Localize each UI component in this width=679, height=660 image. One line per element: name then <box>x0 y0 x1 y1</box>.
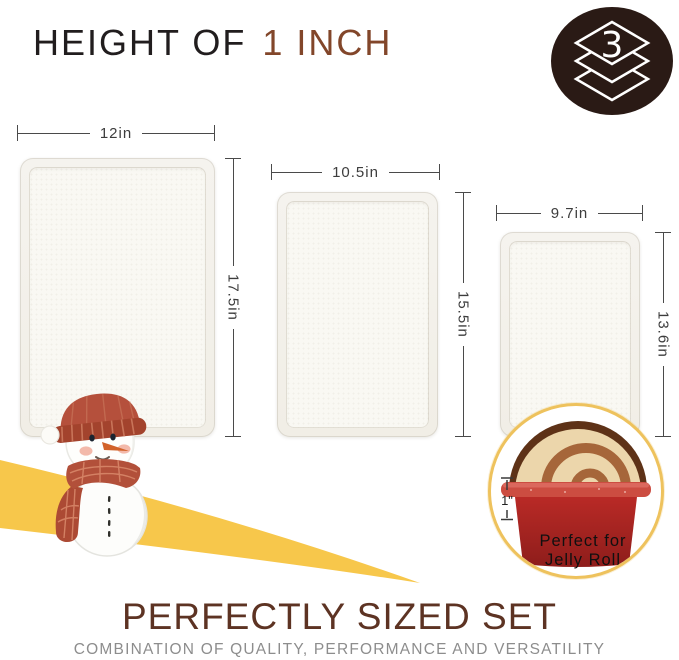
height-dimension-medium: 15.5in <box>453 192 473 437</box>
dimension-line <box>463 193 464 283</box>
dimension-line <box>233 329 234 436</box>
width-dimension-medium: 10.5in <box>271 164 440 180</box>
pan-height-label: 1" <box>501 493 513 508</box>
set-count-badge: 3 <box>551 7 673 115</box>
footer-title: PERFECTLY SIZED SET <box>0 596 679 638</box>
page-title: HEIGHT OF1 INCH <box>33 22 392 64</box>
dimension-line <box>233 159 234 266</box>
dimension-line <box>663 233 664 303</box>
inset-caption-line1: Perfect for <box>539 532 626 550</box>
dimension-line <box>598 213 642 214</box>
dimension-line <box>18 133 90 134</box>
dimension-tick <box>214 125 215 141</box>
width-label-medium: 10.5in <box>322 164 389 181</box>
dimension-line <box>497 213 541 214</box>
jelly-roll-scene: 1" Perfect for Jelly Roll <box>491 406 661 576</box>
height-dimension-large: 17.5in <box>223 158 243 437</box>
dimension-line <box>663 366 664 436</box>
footer-subtitle: COMBINATION OF QUALITY, PERFORMANCE AND … <box>0 641 679 659</box>
dimension-line <box>272 172 322 173</box>
width-dimension-small: 9.7in <box>496 205 643 221</box>
dimension-line <box>142 133 214 134</box>
baking-sheet-medium-surface <box>286 201 429 428</box>
page-title-brown-part: 1 INCH <box>262 22 392 63</box>
dimension-tick <box>642 205 643 221</box>
inset-caption-line2: Jelly Roll <box>545 551 621 569</box>
width-dimension-large: 12in <box>17 125 215 141</box>
stacked-layers-icon: 3 <box>551 7 673 115</box>
page-title-black-part: HEIGHT OF <box>33 22 246 63</box>
dimension-tick <box>455 436 471 437</box>
height-label-medium: 15.5in <box>455 283 472 346</box>
height-label-large: 17.5in <box>225 266 242 329</box>
dimension-line <box>463 346 464 436</box>
baking-sheet-medium <box>277 192 438 437</box>
dimension-line <box>389 172 439 173</box>
height-dimension-small: 13.6in <box>653 232 673 437</box>
snowman-illustration <box>28 392 173 564</box>
baking-sheet-small-surface <box>509 241 631 428</box>
jelly-roll-inset-photo: 1" Perfect for Jelly Roll <box>488 403 664 579</box>
width-label-small: 9.7in <box>541 205 599 222</box>
dimension-tick <box>225 436 241 437</box>
dimension-tick <box>439 164 440 180</box>
height-label-small: 13.6in <box>655 303 672 366</box>
dimension-tick <box>655 436 671 437</box>
width-label-large: 12in <box>90 125 142 142</box>
baking-sheet-large-surface <box>29 167 206 428</box>
badge-count-label: 3 <box>601 25 624 66</box>
